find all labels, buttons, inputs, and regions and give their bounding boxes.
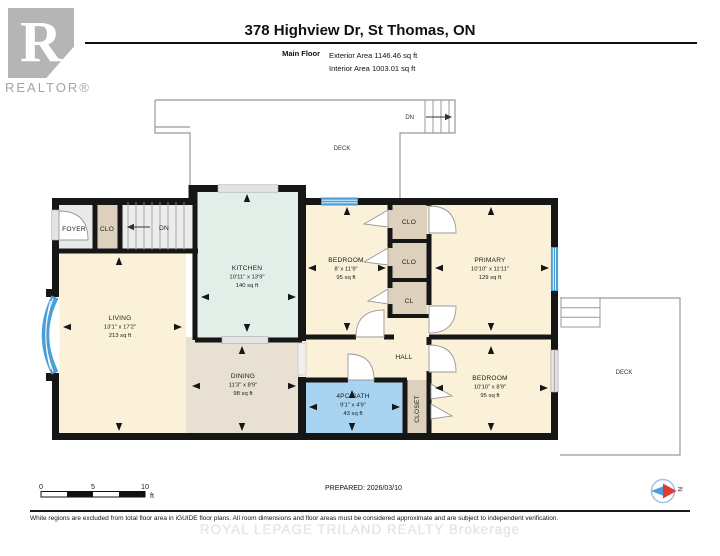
bedroom-middle-dims: 8' x 11'9": [334, 267, 357, 273]
kitchen-label: KITCHEN: [232, 265, 262, 272]
kitchen-dining-opening: [222, 337, 268, 344]
scale-bar: 0 5 10 ft: [39, 482, 154, 500]
closet-middle-label: CLO: [402, 259, 416, 266]
disclaimer-text: White regions are excluded from total fl…: [30, 515, 710, 522]
stairs-label: DN: [159, 225, 169, 232]
bedroom-middle-area: 95 sq ft: [336, 275, 356, 281]
scale-unit: ft: [150, 491, 154, 500]
deck-right: [560, 298, 680, 455]
bedroom-right-area: 95 sq ft: [480, 393, 500, 399]
prepared-date: PREPARED: 2026/03/10: [325, 485, 402, 492]
room-bath: [302, 380, 407, 437]
scale-ten: 10: [141, 482, 149, 491]
primary-window: [551, 247, 558, 291]
footer-divider: [30, 510, 690, 512]
primary-label: PRIMARY: [474, 257, 506, 264]
hall-passage: [388, 318, 431, 340]
living-area: 213 sq ft: [109, 333, 132, 339]
dining-hall-opening: [298, 343, 306, 375]
living-dims: 13'1" x 17'2": [104, 325, 136, 331]
bath-label: 4PC BATH: [336, 393, 369, 400]
floorplan-page: R REALTOR® 378 Highview Dr, St Thomas, O…: [0, 0, 720, 556]
foyer-label: FOYER: [62, 226, 86, 233]
scale-zero: 0: [39, 482, 43, 491]
top-window: [321, 198, 358, 206]
primary-dims: 10'10" x 11'11": [471, 267, 509, 273]
deck-right-label: DECK: [616, 370, 633, 376]
scale-five: 5: [91, 482, 95, 491]
kitchen-dims: 10'11" x 13'9": [229, 275, 264, 281]
floorplan-drawing: DECK DN DECK FOYER CLO DN LIVING 13'1" x…: [0, 0, 720, 556]
bath-area: 43 sq ft: [343, 411, 363, 417]
entry-closet-label: CLO: [100, 226, 114, 233]
bedroom-right-label: BEDROOM: [472, 375, 507, 382]
hall-label: HALL: [395, 354, 412, 361]
brokerage-watermark: ROYAL LEPAGE TRILAND REALTY Brokerage: [110, 522, 610, 537]
closet-top-label: CLO: [402, 219, 416, 226]
front-door-opening: [52, 210, 59, 240]
dining-area: 98 sq ft: [233, 391, 253, 397]
deck-stairs-label: DN: [405, 115, 414, 121]
room-kitchen: [192, 185, 302, 340]
bedroom-middle-label: BEDROOM: [328, 257, 363, 264]
kitchen-area: 140 sq ft: [236, 283, 259, 289]
deck-top-label: DECK: [334, 146, 351, 152]
dining-label: DINING: [231, 373, 255, 380]
compass-icon: N: [651, 480, 683, 503]
bath-dims: 9'1" x 4'9": [340, 403, 366, 409]
living-label: LIVING: [109, 315, 132, 322]
dining-dims: 11'3" x 8'9": [229, 383, 258, 389]
compass-north-label: N: [676, 487, 683, 492]
primary-area: 129 sq ft: [479, 275, 502, 281]
bedroom-right-dims: 10'10" x 8'9": [474, 385, 506, 391]
patio-door: [218, 185, 278, 192]
hall-closet-label: CLOSET: [414, 395, 421, 423]
closet-small-label: CL: [405, 298, 414, 305]
room-living: [52, 251, 186, 440]
